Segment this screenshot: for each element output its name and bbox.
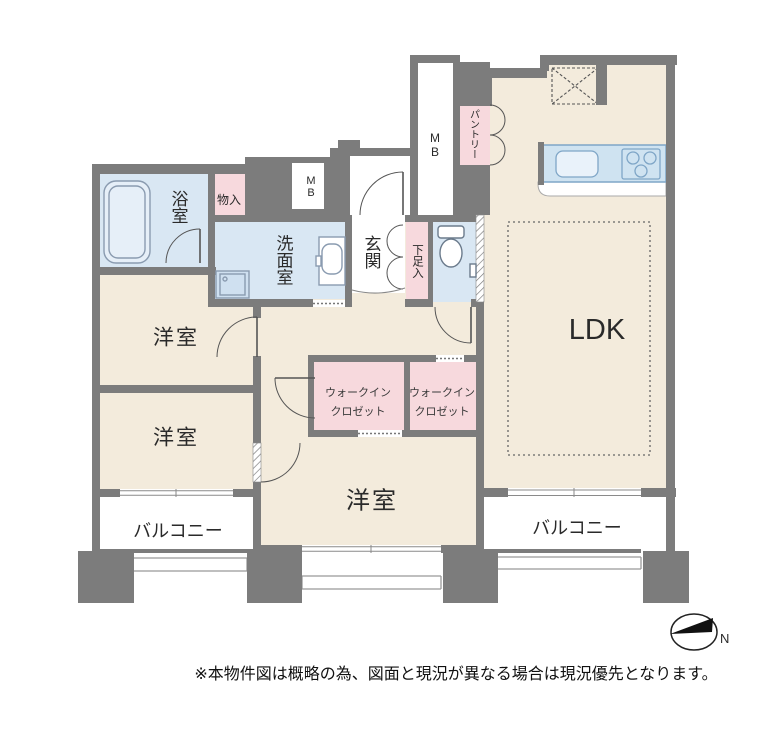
sliding-door-ldk xyxy=(476,215,484,302)
label-mb-box: MB xyxy=(305,175,317,199)
label-wic2-line1: ウォークイン xyxy=(409,386,475,399)
label-wic2-line2: クロゼット xyxy=(415,405,470,418)
floor-plan-page: 浴室 物入 MB MB パントリー 洗面室 玄関 下足入 LDK 洋室 洋室 洋… xyxy=(0,0,768,731)
sliding-door-bedroom xyxy=(253,443,261,482)
floor-areas xyxy=(92,63,666,553)
label-bedroom1: 洋室 xyxy=(153,327,199,350)
label-bedroom2: 洋室 xyxy=(153,427,199,450)
label-wic1-line1: ウォークイン xyxy=(325,386,391,399)
label-ldk: LDK xyxy=(569,314,626,346)
bathtub-icon xyxy=(104,181,150,263)
porch-area xyxy=(350,156,410,215)
sink-icon xyxy=(556,151,598,177)
kitchen-counter-front xyxy=(538,182,666,196)
washing-machine-icon xyxy=(216,271,249,298)
vanity-sink-icon xyxy=(316,237,345,285)
label-balcony-right: バルコニー xyxy=(532,518,622,538)
label-balcony-left: バルコニー xyxy=(133,521,223,541)
label-wic1-line2: クロゼット xyxy=(331,405,386,418)
label-mb-column: MB xyxy=(428,131,442,159)
floor-plan: 浴室 物入 MB MB パントリー 洗面室 玄関 下足入 LDK 洋室 洋室 洋… xyxy=(0,0,768,731)
label-bedroom3: 洋室 xyxy=(346,488,398,515)
balcony-railings xyxy=(105,557,641,589)
label-bathroom: 浴室 xyxy=(169,190,189,224)
footer-note: ※本物件図は概略の為、図面と現況が異なる場合は現況優先となります。 xyxy=(194,665,717,683)
compass-north-label: N xyxy=(720,631,729,646)
compass-icon: N xyxy=(670,614,729,650)
label-storage: 物入 xyxy=(217,193,241,207)
label-entrance: 玄関 xyxy=(362,235,381,269)
label-pantry: パントリー xyxy=(468,109,480,159)
label-washroom: 洗面室 xyxy=(274,234,294,285)
kitchen xyxy=(538,145,666,196)
label-shoe-cabinet: 下足入 xyxy=(411,244,424,279)
